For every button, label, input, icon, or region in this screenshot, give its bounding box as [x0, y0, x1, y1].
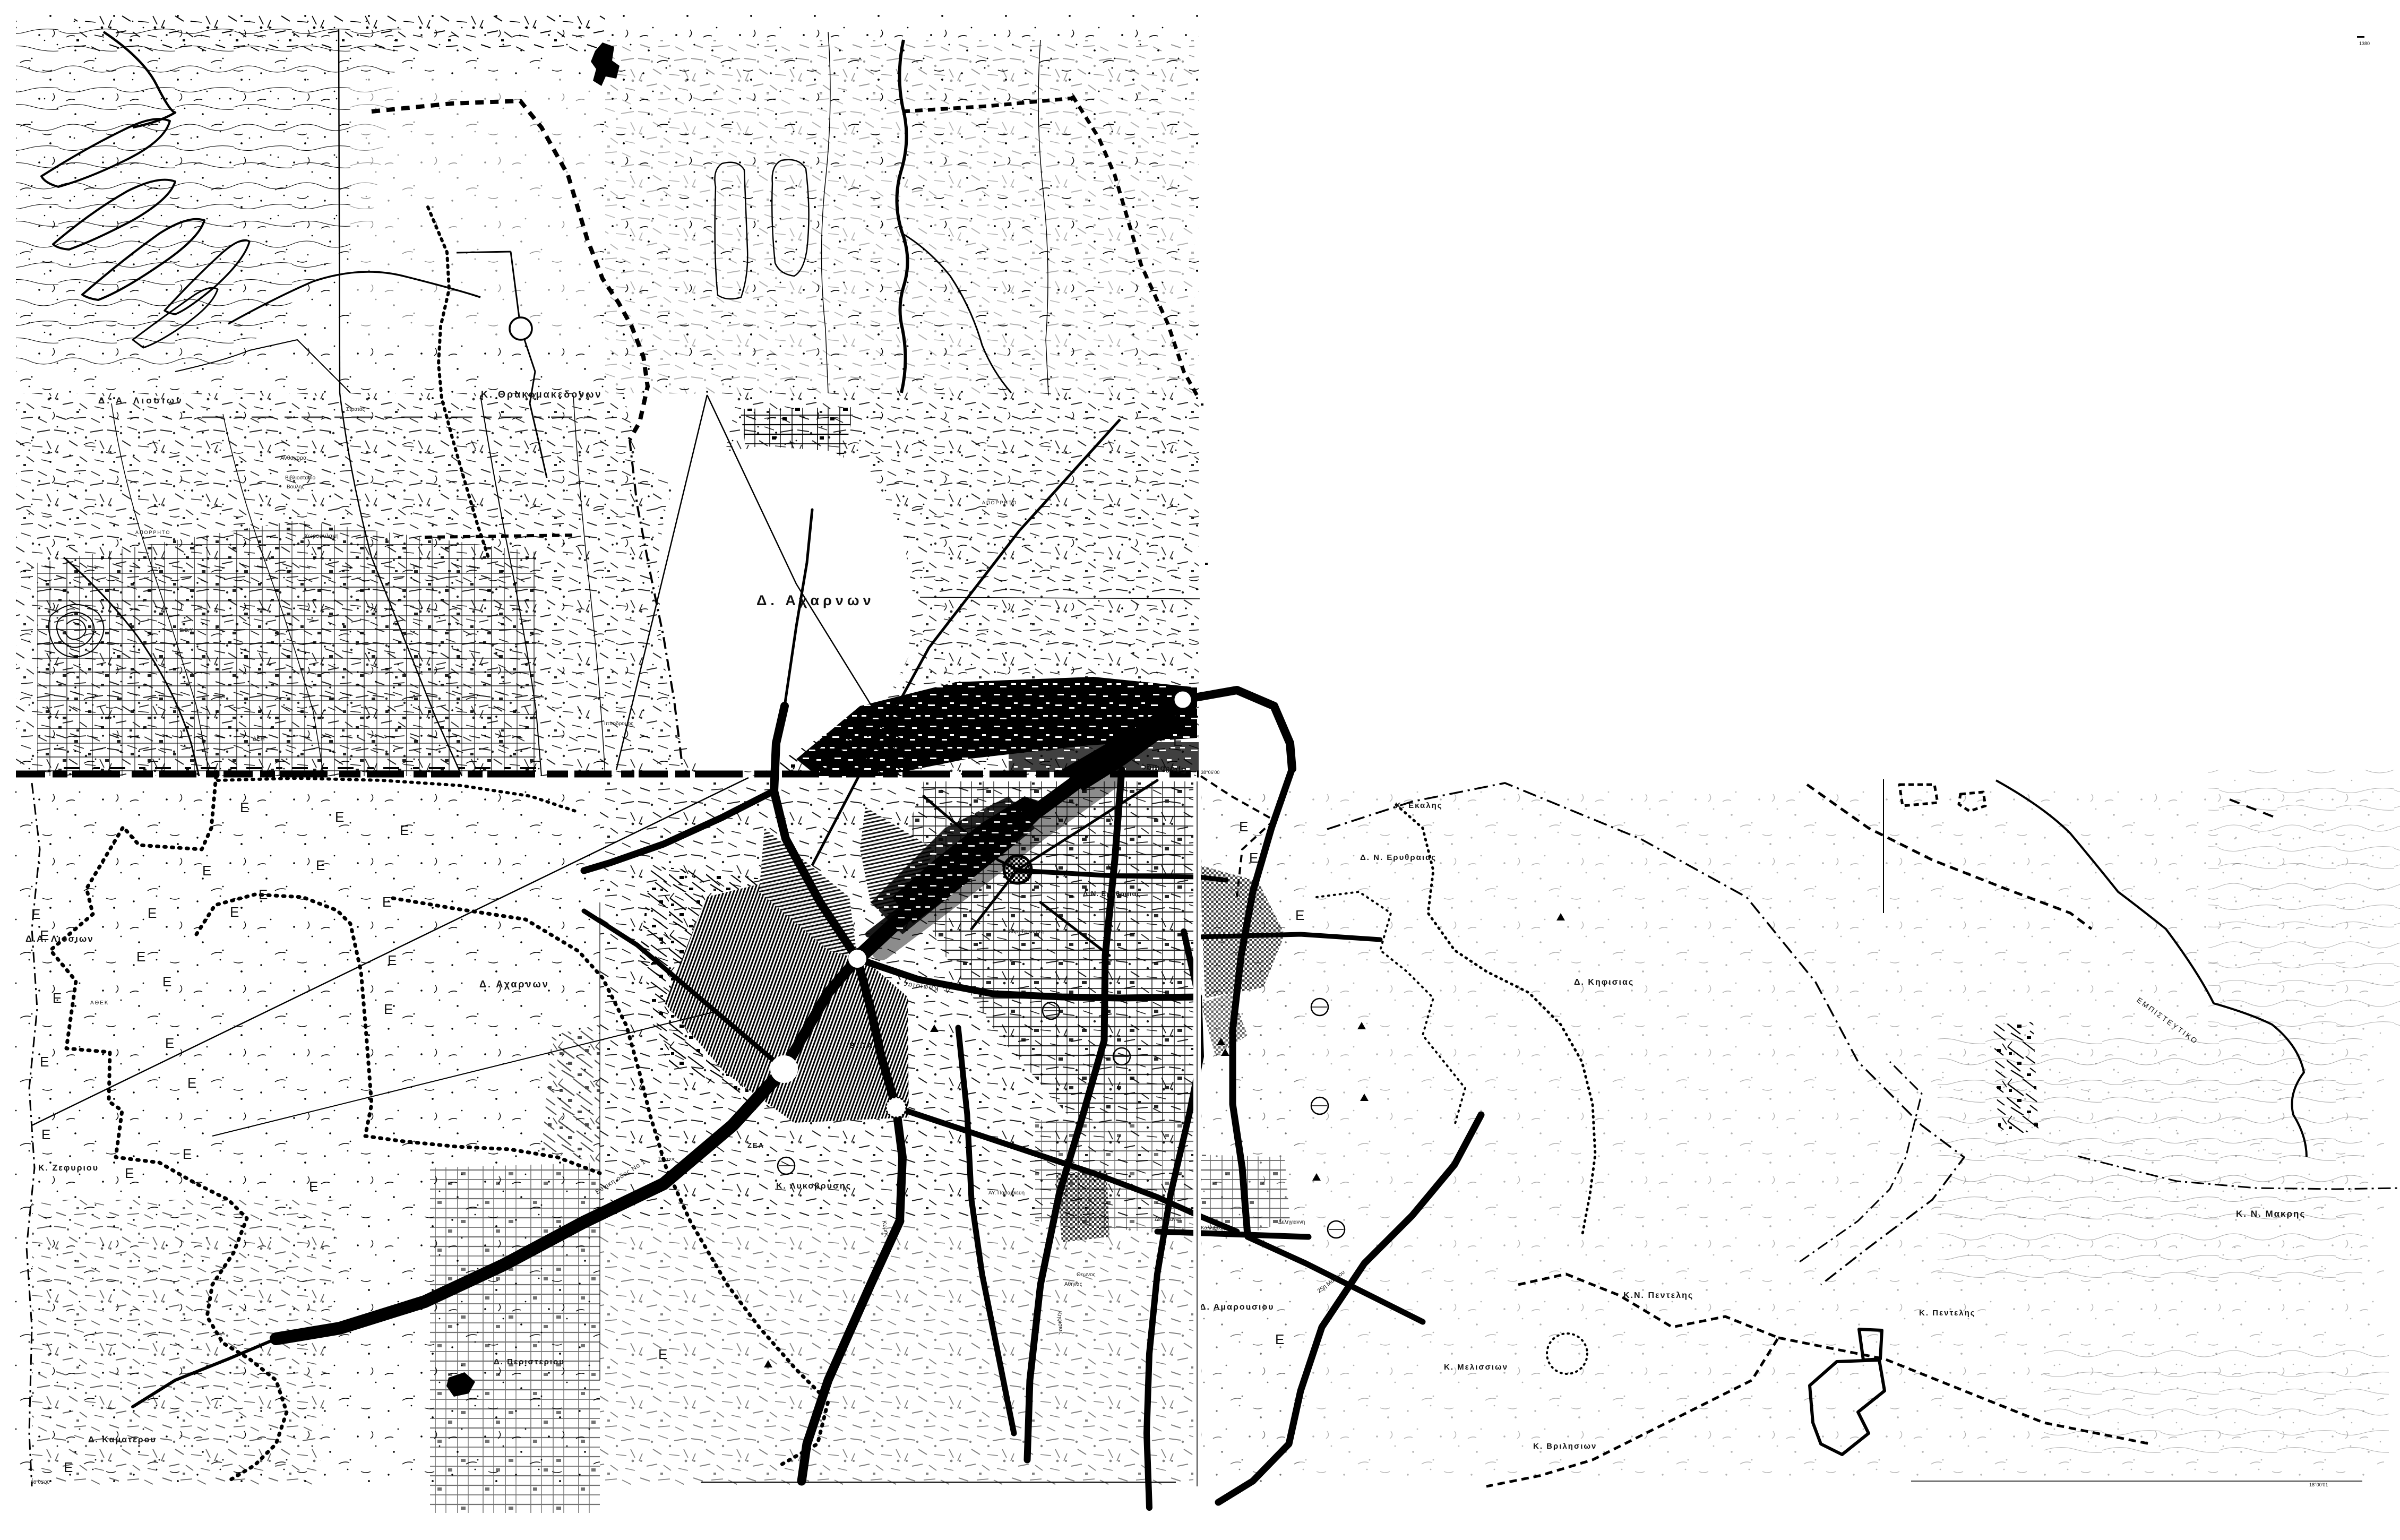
- svg-text:ΑΠΟΡΡΗΤΟ: ΑΠΟΡΡΗΤΟ: [982, 500, 1017, 505]
- svg-text:Δ. Ν. Ερυθραιας: Δ. Ν. Ερυθραιας: [1360, 853, 1436, 862]
- svg-text:Δ.Α. Λιοσιων: Δ.Α. Λιοσιων: [25, 934, 94, 944]
- svg-text:Ε: Ε: [382, 894, 391, 910]
- svg-text:Ε: Ε: [240, 799, 249, 815]
- svg-text:Δ. Κηφισιας: Δ. Κηφισιας: [1574, 978, 1634, 987]
- svg-text:Κ. Μελισσιων: Κ. Μελισσιων: [1444, 1363, 1508, 1372]
- svg-text:Βιβλιοστασιο: Βιβλιοστασιο: [285, 475, 316, 481]
- svg-text:Δεληγιαννη: Δεληγιαννη: [1155, 1217, 1181, 1223]
- svg-text:Ε: Ε: [136, 949, 145, 965]
- svg-text:Δ. Καματερου: Δ. Καματερου: [88, 1435, 157, 1444]
- svg-text:Ε: Ε: [162, 974, 171, 990]
- svg-text:Κ.Ν. Πεντελης: Κ.Ν. Πεντελης: [1623, 1291, 1693, 1300]
- svg-text:Ε: Ε: [187, 1075, 196, 1091]
- svg-text:Δ. Α. Λιοσιων: Δ. Α. Λιοσιων: [98, 395, 184, 406]
- svg-text:Ε: Ε: [183, 1146, 192, 1162]
- svg-text:Ε: Ε: [1173, 733, 1182, 749]
- svg-text:Ε: Ε: [230, 904, 239, 920]
- svg-text:ΑΥ. Παρασκευη: ΑΥ. Παρασκευη: [988, 1190, 1025, 1196]
- svg-text:Ε: Ε: [388, 952, 397, 968]
- svg-text:Χωροφυλακη: Χωροφυλακη: [304, 533, 339, 539]
- svg-text:Καλλιθεας: Καλλιθεας: [1201, 1225, 1225, 1231]
- svg-text:Ε: Ε: [1239, 819, 1248, 834]
- svg-text:ΒΙΠΑ: ΒΙΠΑ: [849, 1041, 874, 1049]
- svg-text:Ε: Ε: [31, 906, 40, 922]
- svg-text:Ε: Ε: [202, 863, 211, 879]
- svg-text:Δεληγιαννη: Δεληγιαννη: [1278, 1219, 1305, 1225]
- svg-text:Ε: Ε: [1295, 907, 1304, 923]
- svg-text:Ε: Ε: [40, 1054, 49, 1070]
- svg-text:Ε: Ε: [259, 887, 268, 902]
- svg-text:1380: 1380: [2359, 41, 2370, 46]
- svg-text:Κ. Πεντελης: Κ. Πεντελης: [1919, 1309, 1976, 1318]
- svg-text:Δ. Αχαρνων: Δ. Αχαρνων: [756, 592, 875, 608]
- svg-text:38°06'00: 38°06'00: [1201, 770, 1219, 775]
- svg-text:Κ. Λυκοβρυσης: Κ. Λυκοβρυσης: [776, 1182, 851, 1191]
- svg-text:Ε: Ε: [64, 1459, 73, 1475]
- svg-text:Δ. Αχαρνων: Δ. Αχαρνων: [479, 979, 549, 990]
- svg-text:Δ. Περιστεριου: Δ. Περιστεριου: [494, 1357, 565, 1366]
- svg-text:Ε: Ε: [53, 990, 62, 1006]
- svg-text:Ε.Β.Υ.: Ε.Β.Υ.: [179, 627, 194, 633]
- svg-text:18°00'01: 18°00'01: [2309, 1482, 2328, 1487]
- svg-text:Στρατος: Στρατος: [658, 1156, 675, 1162]
- svg-text:Δ. Αμαρουσιου: Δ. Αμαρουσιου: [1200, 1303, 1274, 1312]
- svg-text:Ε: Ε: [1249, 850, 1258, 866]
- svg-text:Ε: Ε: [316, 857, 325, 873]
- svg-text:Κ. Ζεφυριου: Κ. Ζεφυριου: [38, 1164, 99, 1173]
- svg-text:Ιπποδρομος: Ιπποδρομος: [604, 721, 633, 727]
- svg-text:Ε: Ε: [125, 1165, 134, 1181]
- svg-text:38°01'00: 38°01'00: [31, 1479, 49, 1485]
- svg-text:Χαρ. Τρικουπη: Χαρ. Τρικουπη: [1009, 929, 1044, 935]
- svg-text:Ε: Ε: [148, 905, 157, 921]
- svg-text:Ε: Ε: [41, 1126, 50, 1142]
- svg-text:Αθηνας: Αθηνας: [1064, 1281, 1082, 1287]
- svg-text:Ε: Ε: [400, 822, 409, 838]
- svg-text:Ε: Ε: [658, 1346, 667, 1362]
- svg-text:ΑΘΕΚ: ΑΘΕΚ: [90, 1000, 109, 1006]
- svg-text:Δ.Ν. Ερυθραιας: Δ.Ν. Ερυθραιας: [1083, 890, 1141, 898]
- svg-text:Ε: Ε: [309, 1178, 318, 1194]
- svg-text:Κ. Θρακομακεδονων: Κ. Θρακομακεδονων: [481, 389, 602, 400]
- svg-text:Ε: Ε: [165, 1035, 174, 1051]
- svg-text:Κ. Εκαλης: Κ. Εκαλης: [1395, 801, 1443, 810]
- svg-text:Θεωνος: Θεωνος: [1077, 1272, 1096, 1278]
- svg-text:ΔΕΗ: ΔΕΗ: [253, 736, 265, 742]
- svg-text:Ε: Ε: [335, 809, 344, 825]
- svg-text:Ε: Ε: [40, 927, 49, 943]
- svg-text:Βουλης: Βουλης: [287, 484, 304, 490]
- svg-text:Κ. Ν. Μακρης: Κ. Ν. Μακρης: [2236, 1209, 2306, 1219]
- svg-text:Ε: Ε: [384, 1001, 393, 1017]
- svg-text:Ε: Ε: [1275, 1331, 1284, 1347]
- svg-text:Ανθαγορα: Ανθαγορα: [280, 455, 307, 461]
- svg-text:ΖΕΑ: ΖΕΑ: [747, 1141, 764, 1149]
- svg-text:Στρατος: Στρατος: [346, 407, 365, 412]
- svg-text:Κ. Βριλησιων: Κ. Βριλησιων: [1533, 1442, 1597, 1451]
